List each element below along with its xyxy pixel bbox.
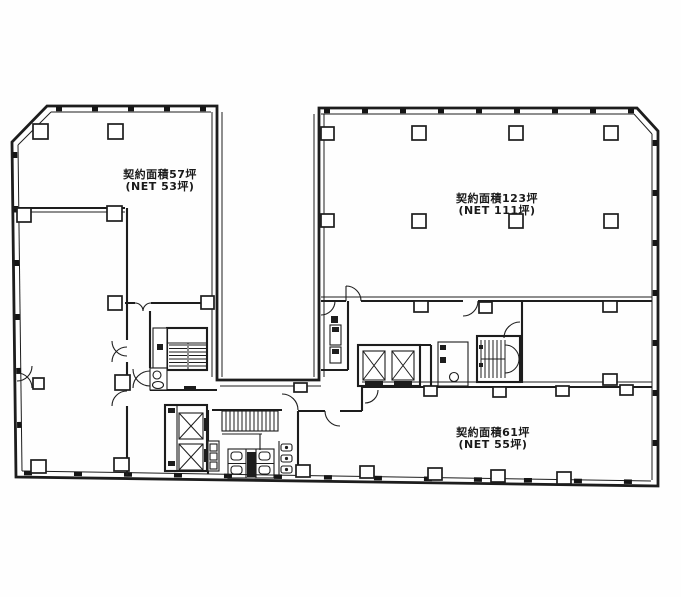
elevator-bank-east xyxy=(358,345,420,386)
restroom-west xyxy=(150,368,167,390)
staircase-west xyxy=(167,328,207,391)
elevator-bank-west xyxy=(165,405,208,471)
unit-northwest-label-line2: (NET 53坪) xyxy=(126,180,195,193)
unit-northeast-label-line2: (NET 111坪) xyxy=(458,204,535,217)
duct-room xyxy=(330,316,341,363)
staircase-east xyxy=(477,336,520,382)
floor-plan: 契約面積57坪 (NET 53坪) 契約面積123坪 (NET 111坪) 契約… xyxy=(0,0,681,597)
floor-plan-page: 契約面積57坪 (NET 53坪) 契約面積123坪 (NET 111坪) 契約… xyxy=(0,0,681,597)
escalator xyxy=(222,411,278,450)
unit-southeast-label-line2: (NET 55坪) xyxy=(459,438,528,451)
utility-room xyxy=(438,342,468,386)
service-shaft xyxy=(153,328,167,368)
unit-northeast-label-line1: 契約面積123坪 xyxy=(455,191,538,205)
unit-southeast-label-line1: 契約面積61坪 xyxy=(455,425,530,439)
restroom-south xyxy=(208,441,292,478)
structural-columns xyxy=(17,124,633,484)
unit-northwest-label-line1: 契約面積57坪 xyxy=(122,167,197,181)
door-arcs xyxy=(17,286,520,426)
